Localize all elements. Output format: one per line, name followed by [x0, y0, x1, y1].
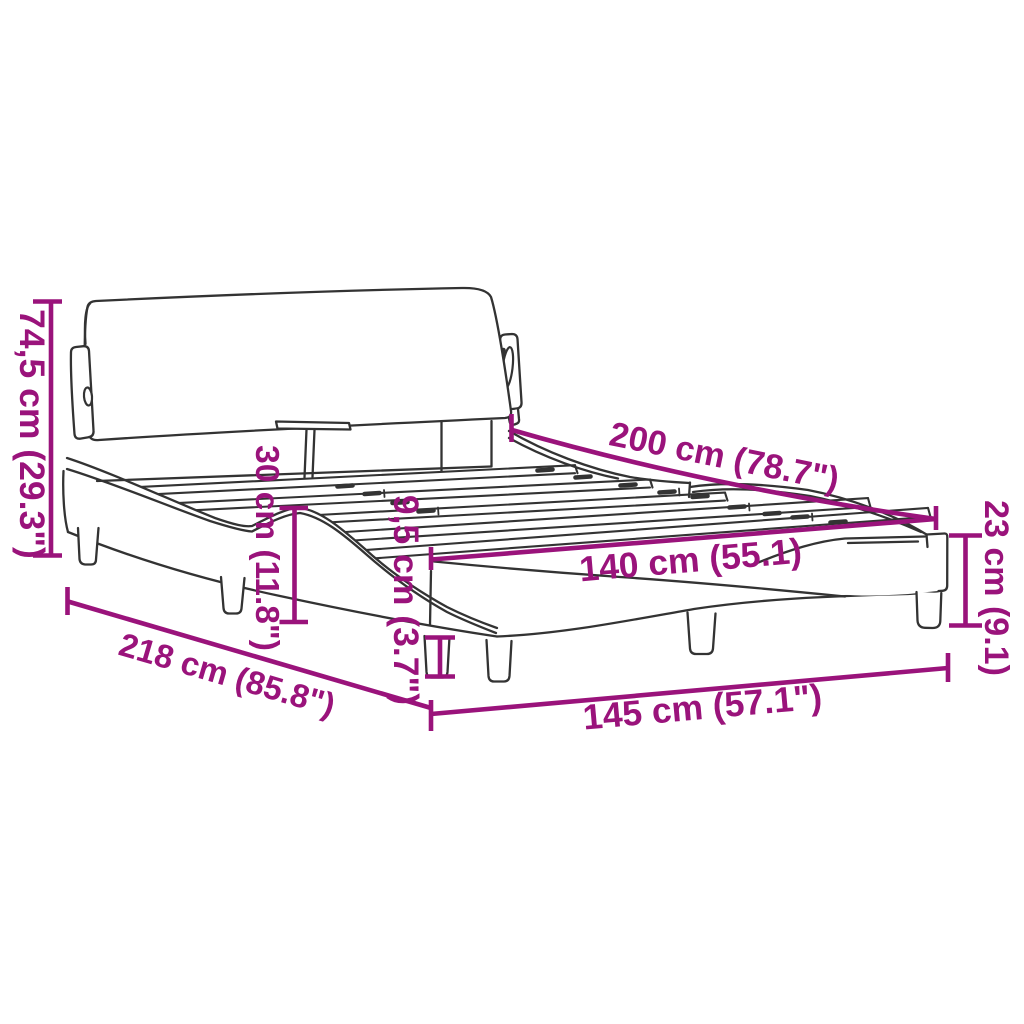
svg-text:23 cm (9.1): 23 cm (9.1)	[977, 500, 1015, 676]
svg-text:30 cm (11.8"): 30 cm (11.8")	[248, 445, 285, 651]
svg-text:9,5 cm (3.7"): 9,5 cm (3.7")	[386, 495, 426, 705]
svg-text:74,5 cm (29.3"): 74,5 cm (29.3")	[12, 309, 52, 559]
